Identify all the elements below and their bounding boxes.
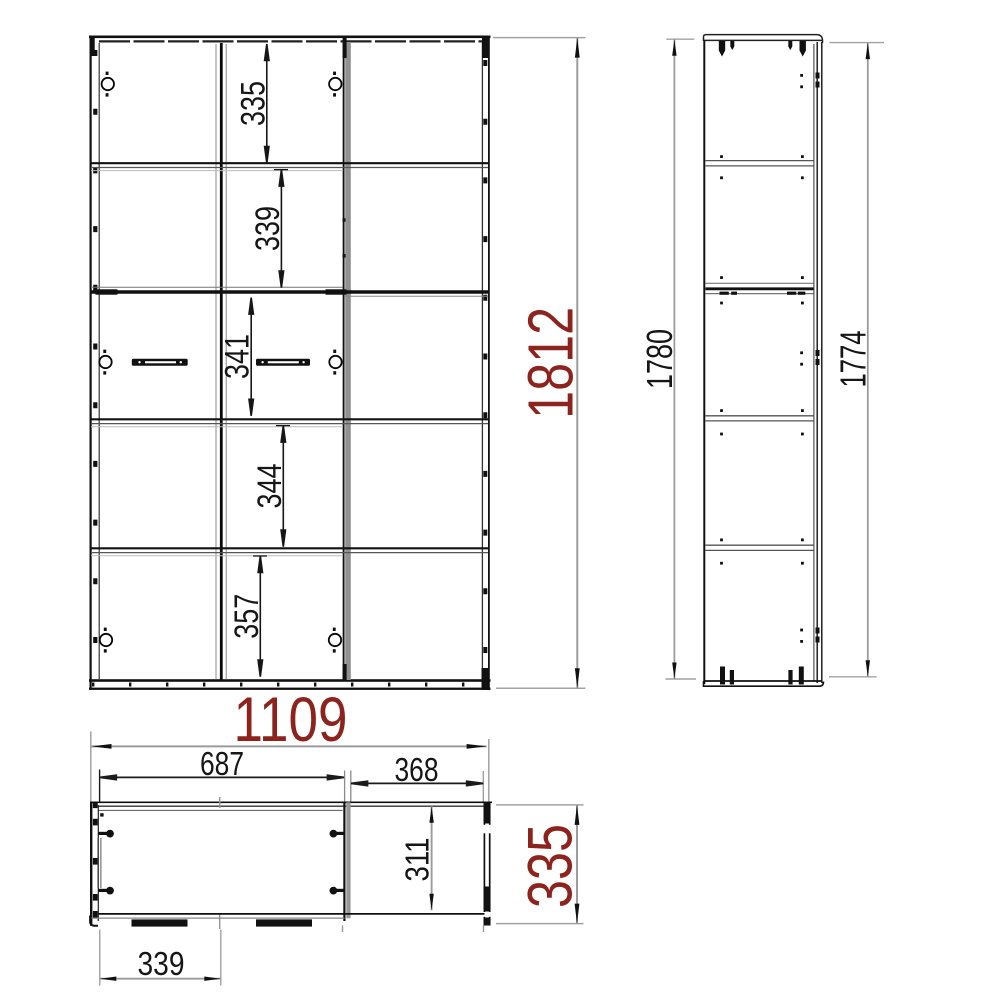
svg-text:339: 339 — [138, 945, 185, 982]
svg-text:1109: 1109 — [234, 685, 348, 755]
svg-text:335: 335 — [234, 81, 272, 126]
svg-text:687: 687 — [200, 745, 244, 782]
svg-text:357: 357 — [228, 594, 266, 639]
svg-text:339: 339 — [249, 206, 287, 251]
svg-text:341: 341 — [219, 334, 257, 379]
svg-text:344: 344 — [251, 464, 289, 509]
svg-text:311: 311 — [399, 838, 436, 882]
svg-text:368: 368 — [395, 751, 439, 788]
svg-text:1774: 1774 — [833, 331, 874, 388]
svg-text:1812: 1812 — [514, 307, 586, 419]
svg-text:1780: 1780 — [639, 329, 680, 389]
svg-text:335: 335 — [516, 824, 586, 908]
